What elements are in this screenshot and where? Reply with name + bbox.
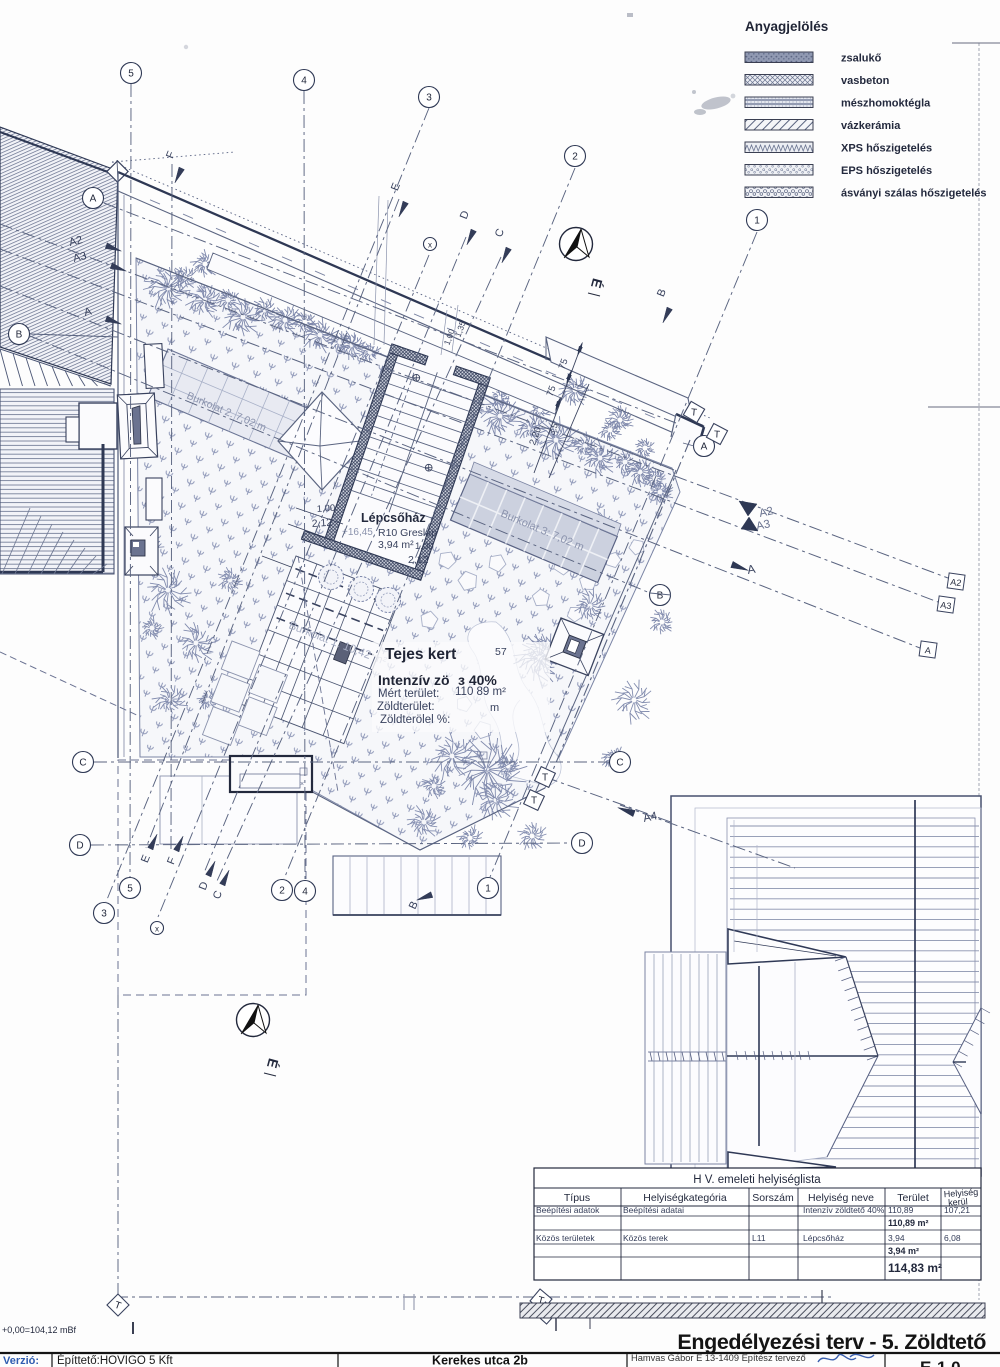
svg-text:57: 57 bbox=[495, 646, 507, 658]
svg-text:Anyagjelölés: Anyagjelölés bbox=[745, 19, 828, 34]
svg-text:vázkerámia: vázkerámia bbox=[841, 120, 901, 132]
svg-text:Verzió:: Verzió: bbox=[3, 1355, 39, 1367]
svg-text:114,83 m²: 114,83 m² bbox=[888, 1261, 942, 1275]
svg-text:XPS hőszigetelés: XPS hőszigetelés bbox=[841, 143, 932, 155]
svg-text:B: B bbox=[657, 591, 664, 602]
svg-text:Lépcsőház: Lépcsőház bbox=[361, 511, 426, 525]
svg-text:Lépcsőház: Lépcsőház bbox=[803, 1233, 844, 1243]
svg-text:5: 5 bbox=[127, 884, 133, 895]
svg-text:4: 4 bbox=[301, 76, 307, 87]
svg-text:C: C bbox=[79, 758, 86, 769]
svg-text:zsalukő: zsalukő bbox=[841, 53, 882, 65]
svg-text:A: A bbox=[90, 194, 97, 205]
svg-text:6,08: 6,08 bbox=[944, 1233, 961, 1243]
svg-text:2: 2 bbox=[572, 152, 578, 163]
svg-text:3,94 m²: 3,94 m² bbox=[378, 539, 414, 551]
svg-text:EPS hőszigetelés: EPS hőszigetelés bbox=[841, 165, 932, 177]
svg-text:D: D bbox=[76, 841, 83, 852]
svg-text:1,00: 1,00 bbox=[316, 503, 335, 515]
svg-text:Zöldterület:: Zöldterület: bbox=[377, 701, 435, 713]
svg-text:L11: L11 bbox=[752, 1233, 766, 1243]
svg-text:3,94: 3,94 bbox=[888, 1233, 905, 1243]
svg-text:Tejes kert: Tejes kert bbox=[385, 646, 456, 663]
svg-text:Terület: Terület bbox=[897, 1192, 929, 1204]
svg-text:×: × bbox=[300, 781, 304, 788]
svg-text:Kerekes utca 2b: Kerekes utca 2b bbox=[432, 1354, 528, 1367]
svg-text:x: x bbox=[428, 241, 432, 250]
svg-text:E-1.0: E-1.0 bbox=[920, 1358, 961, 1367]
svg-text:Beépítési adatok: Beépítési adatok bbox=[536, 1205, 600, 1215]
svg-text:5: 5 bbox=[128, 69, 134, 80]
svg-text:Építtető:HOVIGO 5 Kft: Építtető:HOVIGO 5 Kft bbox=[57, 1354, 173, 1367]
svg-text:1: 1 bbox=[485, 884, 491, 895]
svg-text:Engedélyezési terv - 5. Zöldte: Engedélyezési terv - 5. Zöldtető bbox=[677, 1330, 986, 1354]
svg-text:1,00: 1,00 bbox=[415, 541, 434, 552]
svg-text:C: C bbox=[616, 758, 623, 769]
svg-text:Típus: Típus bbox=[564, 1192, 590, 1204]
svg-text:A3: A3 bbox=[940, 600, 952, 611]
svg-text:Helyiség neve: Helyiség neve bbox=[808, 1192, 874, 1204]
svg-text:m: m bbox=[490, 702, 499, 714]
svg-text:110 89 m²: 110 89 m² bbox=[455, 686, 506, 698]
svg-text:D: D bbox=[578, 839, 585, 850]
svg-text:Mért terület:: Mért terület: bbox=[378, 688, 439, 700]
svg-text:+16,45: +16,45 bbox=[342, 527, 373, 538]
svg-text:Intenzív zö: Intenzív zö bbox=[378, 672, 450, 688]
svg-text:2,12: 2,12 bbox=[408, 554, 429, 566]
svg-text:Beépítési adatai: Beépítési adatai bbox=[623, 1205, 684, 1215]
svg-text:Közös terek: Közös terek bbox=[623, 1233, 669, 1243]
svg-text:R10 Greslap: R10 Greslap bbox=[378, 527, 437, 539]
svg-text:T: T bbox=[714, 429, 721, 440]
svg-text:Sorszám: Sorszám bbox=[752, 1192, 794, 1204]
svg-text:Közös területek: Közös területek bbox=[536, 1233, 595, 1243]
svg-text:110,89 m²: 110,89 m² bbox=[888, 1218, 929, 1228]
svg-text:3,94 m²: 3,94 m² bbox=[888, 1246, 919, 1256]
svg-text:ásványi szálas hőszigetelés: ásványi szálas hőszigetelés bbox=[841, 188, 987, 200]
svg-text:mészhomoktégla: mészhomoktégla bbox=[841, 98, 931, 110]
svg-text:B: B bbox=[16, 330, 23, 341]
svg-text:2: 2 bbox=[279, 886, 285, 897]
svg-text:T: T bbox=[531, 796, 537, 807]
svg-text:2,12: 2,12 bbox=[311, 517, 332, 530]
svg-text:A2: A2 bbox=[950, 577, 962, 588]
svg-text:110,89: 110,89 bbox=[888, 1205, 914, 1215]
svg-text:Intenzív zöldtető 40%: Intenzív zöldtető 40% bbox=[803, 1205, 885, 1215]
svg-text:4: 4 bbox=[302, 887, 308, 898]
svg-text:+0,00=104,12 mBf: +0,00=104,12 mBf bbox=[2, 1325, 77, 1335]
svg-text:107,21: 107,21 bbox=[944, 1205, 970, 1215]
svg-text:T: T bbox=[542, 773, 548, 784]
svg-text:3: 3 bbox=[101, 909, 107, 920]
svg-text:vasbeton: vasbeton bbox=[841, 75, 890, 87]
svg-text:T: T bbox=[690, 407, 697, 418]
svg-text:1: 1 bbox=[754, 216, 760, 227]
svg-text:Zöldterölel %:: Zöldterölel %: bbox=[380, 714, 450, 726]
svg-text:H V. emeleti helyiséglista: H V. emeleti helyiséglista bbox=[693, 1174, 821, 1186]
svg-text:Helyiségkategória: Helyiségkategória bbox=[643, 1192, 727, 1204]
svg-text:Hamvas Gábor É 13-1409 Építé: Hamvas Gábor É 13-1409 Építész tervező bbox=[631, 1353, 806, 1363]
svg-text:A: A bbox=[701, 442, 708, 453]
svg-text:3: 3 bbox=[426, 93, 432, 104]
svg-text:x: x bbox=[155, 925, 159, 934]
